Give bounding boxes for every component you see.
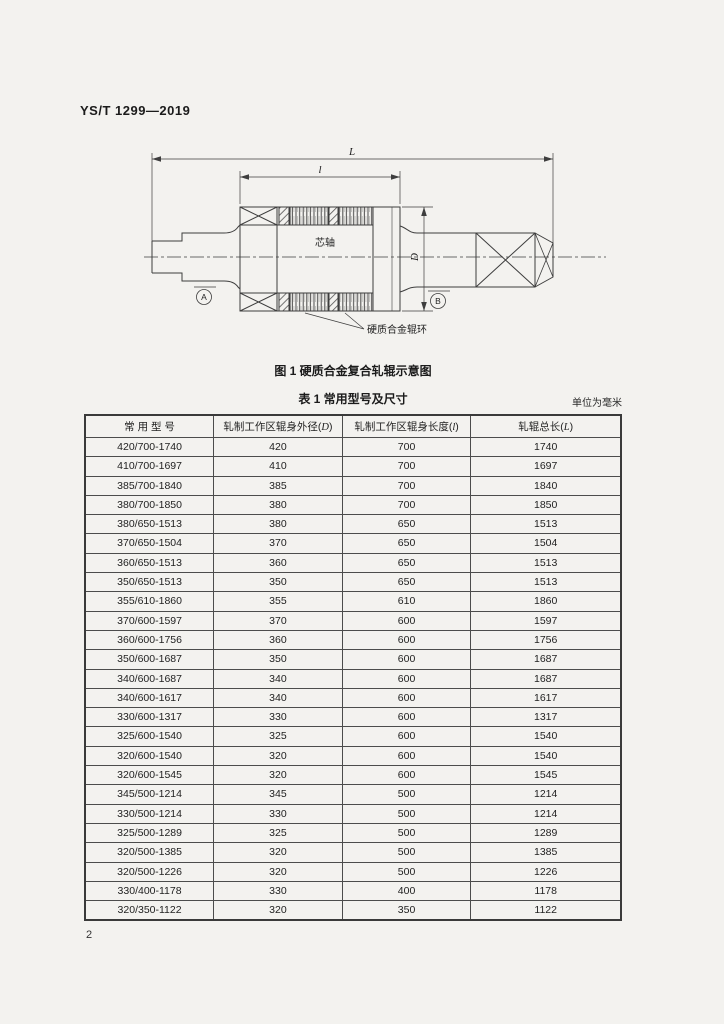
table-cell: 1840 bbox=[471, 476, 621, 495]
table-row: 370/600-15973706001597 bbox=[85, 611, 621, 630]
table-cell: 340/600-1617 bbox=[85, 688, 214, 707]
table-cell: 355/610-1860 bbox=[85, 592, 214, 611]
table-cell: 325 bbox=[214, 823, 343, 842]
table-cell: 360/650-1513 bbox=[85, 553, 214, 572]
table-cell: 700 bbox=[342, 495, 471, 514]
table-cell: 1617 bbox=[471, 688, 621, 707]
table-cell: 330 bbox=[214, 708, 343, 727]
table-cell: 380/650-1513 bbox=[85, 515, 214, 534]
table-cell: 600 bbox=[342, 766, 471, 785]
table-cell: 320 bbox=[214, 862, 343, 881]
drive-tip bbox=[535, 233, 553, 287]
table-cell: 320/600-1540 bbox=[85, 746, 214, 765]
column-header: 轧制工作区辊身长度(l) bbox=[342, 415, 471, 438]
table-row: 345/500-12143455001214 bbox=[85, 785, 621, 804]
table-cell: 600 bbox=[342, 746, 471, 765]
table-cell: 600 bbox=[342, 688, 471, 707]
core-shaft bbox=[277, 225, 373, 293]
table-cell: 700 bbox=[342, 438, 471, 457]
roll-outline bbox=[144, 153, 606, 329]
table-cell: 330/600-1317 bbox=[85, 708, 214, 727]
table-cell: 1860 bbox=[471, 592, 621, 611]
table-row: 320/500-12263205001226 bbox=[85, 862, 621, 881]
table-cell: 1513 bbox=[471, 553, 621, 572]
table-cell: 1214 bbox=[471, 804, 621, 823]
table-cell: 325/600-1540 bbox=[85, 727, 214, 746]
table-cell: 1178 bbox=[471, 881, 621, 900]
table-row: 350/650-15133506501513 bbox=[85, 573, 621, 592]
table-cell: 600 bbox=[342, 611, 471, 630]
table-cell: 700 bbox=[342, 457, 471, 476]
carbide-ring-label: 硬质合金辊环 bbox=[367, 323, 427, 336]
table-cell: 1214 bbox=[471, 785, 621, 804]
table-cell: 1545 bbox=[471, 766, 621, 785]
table-cell: 500 bbox=[342, 823, 471, 842]
table-cell: 610 bbox=[342, 592, 471, 611]
table-cell: 320/600-1545 bbox=[85, 766, 214, 785]
table-cell: 350/600-1687 bbox=[85, 650, 214, 669]
table-cell: 1317 bbox=[471, 708, 621, 727]
table-cell: 500 bbox=[342, 843, 471, 862]
table-cell: 350 bbox=[214, 573, 343, 592]
table-cell: 320 bbox=[214, 766, 343, 785]
table-row: 380/700-18503807001850 bbox=[85, 495, 621, 514]
table-row: 410/700-16974107001697 bbox=[85, 457, 621, 476]
table-cell: 600 bbox=[342, 727, 471, 746]
standard-number: YS/T 1299—2019 bbox=[80, 103, 190, 118]
table-cell: 380 bbox=[214, 495, 343, 514]
column-header: 常 用 型 号 bbox=[85, 415, 214, 438]
figure-caption: 图 1 硬质合金复合轧辊示意图 bbox=[84, 362, 622, 379]
table-cell: 370 bbox=[214, 534, 343, 553]
table-cell: 600 bbox=[342, 708, 471, 727]
table-cell: 340 bbox=[214, 688, 343, 707]
leader-lines bbox=[305, 313, 364, 329]
table-row: 325/500-12893255001289 bbox=[85, 823, 621, 842]
table-cell: 1513 bbox=[471, 573, 621, 592]
datum-b-label: B bbox=[435, 296, 441, 306]
table-cell: 500 bbox=[342, 804, 471, 823]
table-cell: 600 bbox=[342, 650, 471, 669]
table-cell: 1597 bbox=[471, 611, 621, 630]
table-cell: 385/700-1840 bbox=[85, 476, 214, 495]
table-cell: 370/650-1504 bbox=[85, 534, 214, 553]
table-row: 380/650-15133806501513 bbox=[85, 515, 621, 534]
table-cell: 650 bbox=[342, 534, 471, 553]
table-cell: 360 bbox=[214, 553, 343, 572]
header-row: 常 用 型 号轧制工作区辊身外径(D)轧制工作区辊身长度(l)轧辊总长(L) bbox=[85, 415, 621, 438]
table-cell: 1122 bbox=[471, 901, 621, 921]
table-cell: 320 bbox=[214, 901, 343, 921]
dimension-arrowheads bbox=[152, 156, 553, 311]
table-cell: 320/500-1226 bbox=[85, 862, 214, 881]
table-cell: 320/350-1122 bbox=[85, 901, 214, 921]
table-cell: 340 bbox=[214, 669, 343, 688]
table-cell: 370 bbox=[214, 611, 343, 630]
table-cell: 420 bbox=[214, 438, 343, 457]
table-cell: 410/700-1697 bbox=[85, 457, 214, 476]
left-journal-top bbox=[152, 225, 240, 241]
core-shaft-label: 芯轴 bbox=[315, 236, 335, 249]
dim-label-diameter: D bbox=[409, 253, 421, 262]
table-cell: 1540 bbox=[471, 727, 621, 746]
table-cell: 1289 bbox=[471, 823, 621, 842]
table-cell: 420/700-1740 bbox=[85, 438, 214, 457]
table-cell: 1540 bbox=[471, 746, 621, 765]
table-cell: 320 bbox=[214, 746, 343, 765]
table-row: 320/500-13853205001385 bbox=[85, 843, 621, 862]
table-row: 385/700-18403857001840 bbox=[85, 476, 621, 495]
table-cell: 600 bbox=[342, 630, 471, 649]
table-cell: 1226 bbox=[471, 862, 621, 881]
table-cell: 360/600-1756 bbox=[85, 630, 214, 649]
table-cell: 1385 bbox=[471, 843, 621, 862]
table-row: 330/600-13173306001317 bbox=[85, 708, 621, 727]
table-cell: 340/600-1687 bbox=[85, 669, 214, 688]
table-row: 420/700-17404207001740 bbox=[85, 438, 621, 457]
table-row: 325/600-15403256001540 bbox=[85, 727, 621, 746]
table-row: 355/610-18603556101860 bbox=[85, 592, 621, 611]
roll-diagram: L l D 芯轴 硬质合金辊环 A B bbox=[140, 142, 610, 358]
unit-note: 单位为毫米 bbox=[84, 394, 622, 409]
table-cell: 410 bbox=[214, 457, 343, 476]
column-header: 轧辊总长(L) bbox=[471, 415, 621, 438]
table-cell: 350 bbox=[342, 901, 471, 921]
table-cell: 650 bbox=[342, 573, 471, 592]
table-cell: 385 bbox=[214, 476, 343, 495]
table-cell: 330/500-1214 bbox=[85, 804, 214, 823]
table-cell: 1504 bbox=[471, 534, 621, 553]
table-cell: 330 bbox=[214, 881, 343, 900]
table-cell: 370/600-1597 bbox=[85, 611, 214, 630]
table-cell: 700 bbox=[342, 476, 471, 495]
table-cell: 500 bbox=[342, 785, 471, 804]
table-row: 330/500-12143305001214 bbox=[85, 804, 621, 823]
table-cell: 355 bbox=[214, 592, 343, 611]
dim-label-working-length: l bbox=[318, 164, 321, 176]
table-cell: 330 bbox=[214, 804, 343, 823]
table-row: 320/600-15453206001545 bbox=[85, 766, 621, 785]
table-cell: 325/500-1289 bbox=[85, 823, 214, 842]
dim-label-overall-length: L bbox=[348, 146, 355, 158]
table-cell: 320/500-1385 bbox=[85, 843, 214, 862]
page-number: 2 bbox=[86, 929, 92, 941]
table-cell: 345/500-1214 bbox=[85, 785, 214, 804]
table-cell: 360 bbox=[214, 630, 343, 649]
table-row: 360/650-15133606501513 bbox=[85, 553, 621, 572]
table-cell: 1756 bbox=[471, 630, 621, 649]
table-cell: 330/400-1178 bbox=[85, 881, 214, 900]
table-cell: 500 bbox=[342, 862, 471, 881]
right-journal-top bbox=[400, 226, 476, 233]
table-cell: 1687 bbox=[471, 669, 621, 688]
table-cell: 380/700-1850 bbox=[85, 495, 214, 514]
dimension-table: 常 用 型 号轧制工作区辊身外径(D)轧制工作区辊身长度(l)轧辊总长(L) 4… bbox=[84, 414, 622, 921]
table-cell: 1513 bbox=[471, 515, 621, 534]
table-row: 340/600-16873406001687 bbox=[85, 669, 621, 688]
table-cell: 380 bbox=[214, 515, 343, 534]
table-row: 370/650-15043706501504 bbox=[85, 534, 621, 553]
table-cell: 350/650-1513 bbox=[85, 573, 214, 592]
table-cell: 650 bbox=[342, 515, 471, 534]
datum-a-label: A bbox=[201, 292, 207, 302]
table-cell: 1687 bbox=[471, 650, 621, 669]
table-cell: 650 bbox=[342, 553, 471, 572]
table-cell: 350 bbox=[214, 650, 343, 669]
table-cell: 600 bbox=[342, 669, 471, 688]
table-cell: 1850 bbox=[471, 495, 621, 514]
table-row: 320/600-15403206001540 bbox=[85, 746, 621, 765]
table-row: 330/400-11783304001178 bbox=[85, 881, 621, 900]
table-cell: 325 bbox=[214, 727, 343, 746]
table-cell: 1740 bbox=[471, 438, 621, 457]
table-row: 360/600-17563606001756 bbox=[85, 630, 621, 649]
table-row: 350/600-16873506001687 bbox=[85, 650, 621, 669]
table-row: 340/600-16173406001617 bbox=[85, 688, 621, 707]
column-header: 轧制工作区辊身外径(D) bbox=[214, 415, 343, 438]
table-cell: 345 bbox=[214, 785, 343, 804]
table-cell: 320 bbox=[214, 843, 343, 862]
document-page: YS/T 1299—2019 bbox=[0, 0, 724, 1024]
table-row: 320/350-11223203501122 bbox=[85, 901, 621, 921]
table-cell: 1697 bbox=[471, 457, 621, 476]
table-cell: 400 bbox=[342, 881, 471, 900]
